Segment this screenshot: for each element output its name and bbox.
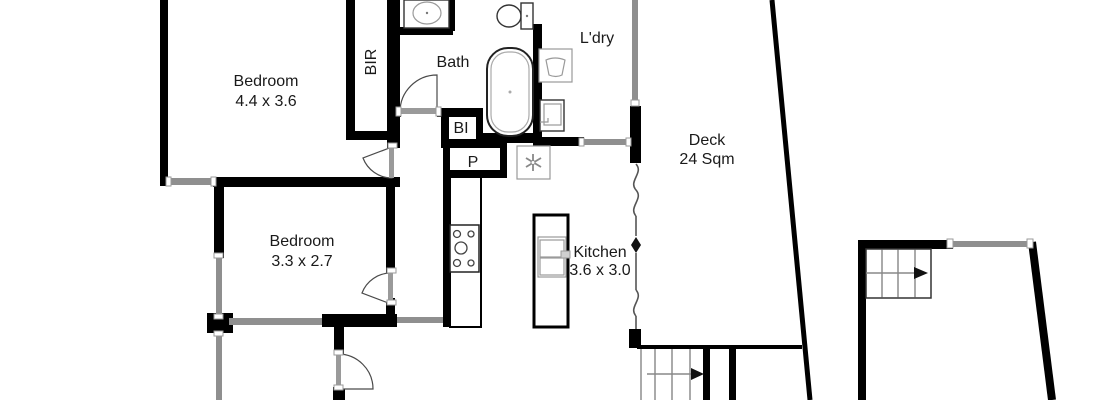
kitchen-label: Kitchen [573,244,626,261]
island-bench [534,215,568,327]
bedroom1-door-swing-icon [363,143,397,178]
bath-label: Bath [437,54,470,71]
walls [160,0,1052,400]
bedroom1-label: Bedroom [234,73,299,90]
laundry-label: L'dry [580,30,614,47]
deck-label: Deck [689,132,726,149]
lower-door-swing-icon [334,350,373,390]
windows [166,0,1033,400]
room-labels: Bedroom 4.4 x 3.6 BIR Bath L'dry BI P Be… [234,30,735,279]
bedroom2-label: Bedroom [270,233,335,250]
pantry-label: P [468,154,479,171]
bedroom2-dims: 3.3 x 2.7 [271,253,332,270]
floorplan-drawing: Bedroom 4.4 x 3.6 BIR Bath L'dry BI P Be… [0,0,1100,400]
deck-dims: 24 Sqm [679,151,734,168]
heater-fan-icon [517,146,550,179]
garage-stairs-icon [866,249,931,298]
laundry-tub-icon [540,100,564,131]
bathtub-icon [487,48,533,136]
toilet-icon [497,3,533,29]
kitchen-dims: 3.6 x 3.0 [569,262,630,279]
vanity-basin-icon [404,0,449,28]
deck-stairs-icon [641,349,704,400]
builtin-label: BI [453,120,468,137]
washing-machine-icon [539,49,572,82]
bedroom2-door-swing-icon [362,268,396,305]
floorplan: Bedroom 4.4 x 3.6 BIR Bath L'dry BI P Be… [0,0,1100,400]
bath-door-swing-icon [396,75,441,116]
cooktop-icon [450,225,479,272]
robe-label: BIR [363,49,380,76]
bedroom1-dims: 4.4 x 3.6 [235,93,296,110]
bifold-break-icon [631,164,641,329]
